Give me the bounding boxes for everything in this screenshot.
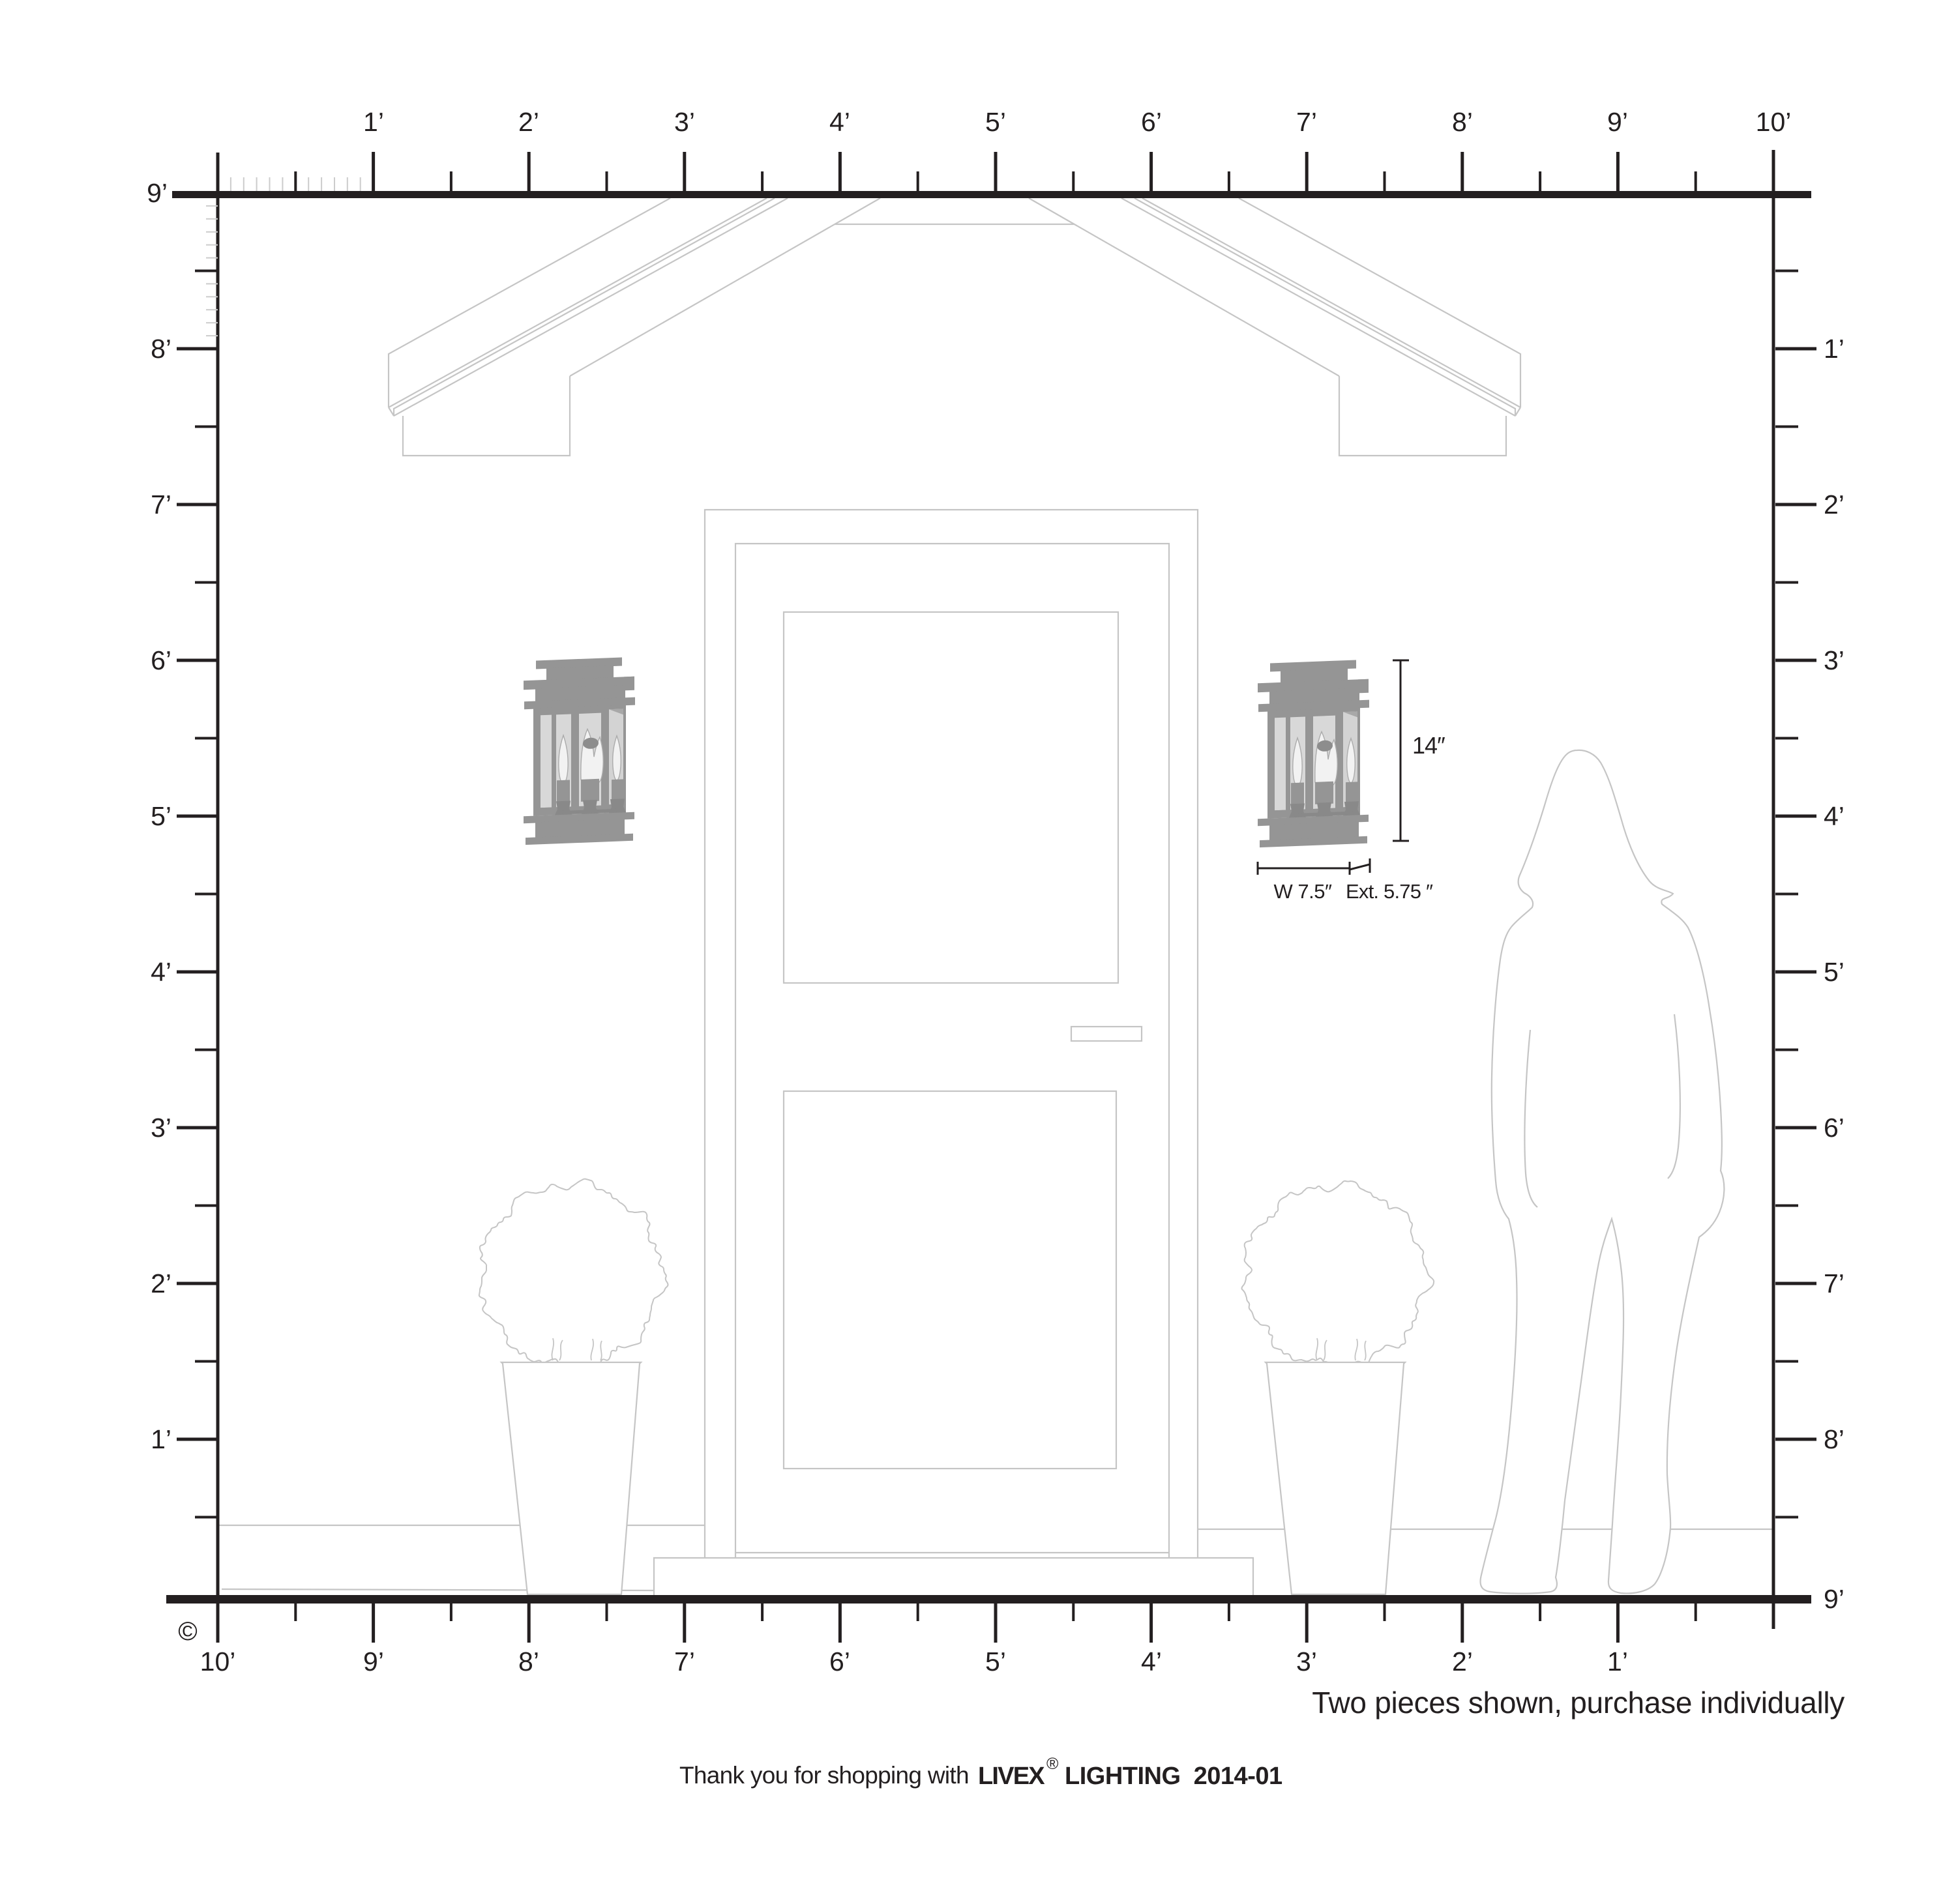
svg-text:1’: 1’ (1607, 1647, 1628, 1677)
svg-text:LIVEX: LIVEX (978, 1763, 1045, 1790)
svg-text:W 7.5″: W 7.5″ (1274, 880, 1332, 903)
svg-text:©: © (178, 1617, 197, 1646)
svg-text:10’: 10’ (1756, 107, 1792, 137)
svg-text:7’: 7’ (674, 1647, 695, 1677)
svg-text:9’: 9’ (1824, 1584, 1845, 1614)
svg-text:6’: 6’ (829, 1647, 850, 1677)
svg-text:®: ® (1046, 1755, 1059, 1773)
svg-text:2’: 2’ (518, 107, 539, 137)
svg-text:4’: 4’ (1824, 801, 1845, 831)
svg-text:5’: 5’ (151, 801, 171, 831)
svg-text:2’: 2’ (1452, 1647, 1473, 1677)
svg-text:7’: 7’ (151, 490, 171, 520)
svg-text:4’: 4’ (151, 957, 171, 987)
svg-text:5’: 5’ (1824, 957, 1845, 987)
svg-text:3’: 3’ (1296, 1647, 1317, 1677)
svg-text:6’: 6’ (151, 645, 171, 675)
svg-text:8’: 8’ (1824, 1424, 1845, 1454)
svg-text:Thank you for shopping with: Thank you for shopping with (679, 1762, 969, 1789)
svg-text:8’: 8’ (1452, 107, 1473, 137)
svg-text:1’: 1’ (1824, 334, 1845, 364)
svg-text:4’: 4’ (829, 107, 850, 137)
svg-text:3’: 3’ (1824, 645, 1845, 675)
svg-text:6’: 6’ (1141, 107, 1162, 137)
svg-text:4’: 4’ (1141, 1647, 1162, 1677)
svg-text:7’: 7’ (1824, 1268, 1845, 1298)
svg-text:14″: 14″ (1412, 732, 1445, 759)
svg-text:9’: 9’ (363, 1647, 384, 1677)
svg-text:5’: 5’ (985, 1647, 1006, 1677)
svg-text:9’: 9’ (147, 178, 168, 208)
svg-text:8’: 8’ (151, 334, 171, 364)
svg-text:6’: 6’ (1824, 1113, 1845, 1143)
svg-text:8’: 8’ (518, 1647, 539, 1677)
svg-text:3’: 3’ (674, 107, 695, 137)
svg-text:7’: 7’ (1296, 107, 1317, 137)
svg-text:9’: 9’ (1607, 107, 1628, 137)
svg-text:1’: 1’ (363, 107, 384, 137)
svg-text:2’: 2’ (151, 1268, 171, 1298)
svg-text:2’: 2’ (1824, 490, 1845, 520)
svg-text:5’: 5’ (985, 107, 1006, 137)
svg-text:10’: 10’ (200, 1647, 236, 1677)
svg-text:Two pieces shown, purchase ind: Two pieces shown, purchase individually (1312, 1686, 1845, 1720)
svg-text:Ext. 5.75 ″: Ext. 5.75 ″ (1346, 880, 1433, 903)
svg-text:3’: 3’ (151, 1113, 171, 1143)
svg-text:1’: 1’ (151, 1424, 171, 1454)
svg-text:LIGHTING 2014-01: LIGHTING 2014-01 (1065, 1763, 1282, 1790)
